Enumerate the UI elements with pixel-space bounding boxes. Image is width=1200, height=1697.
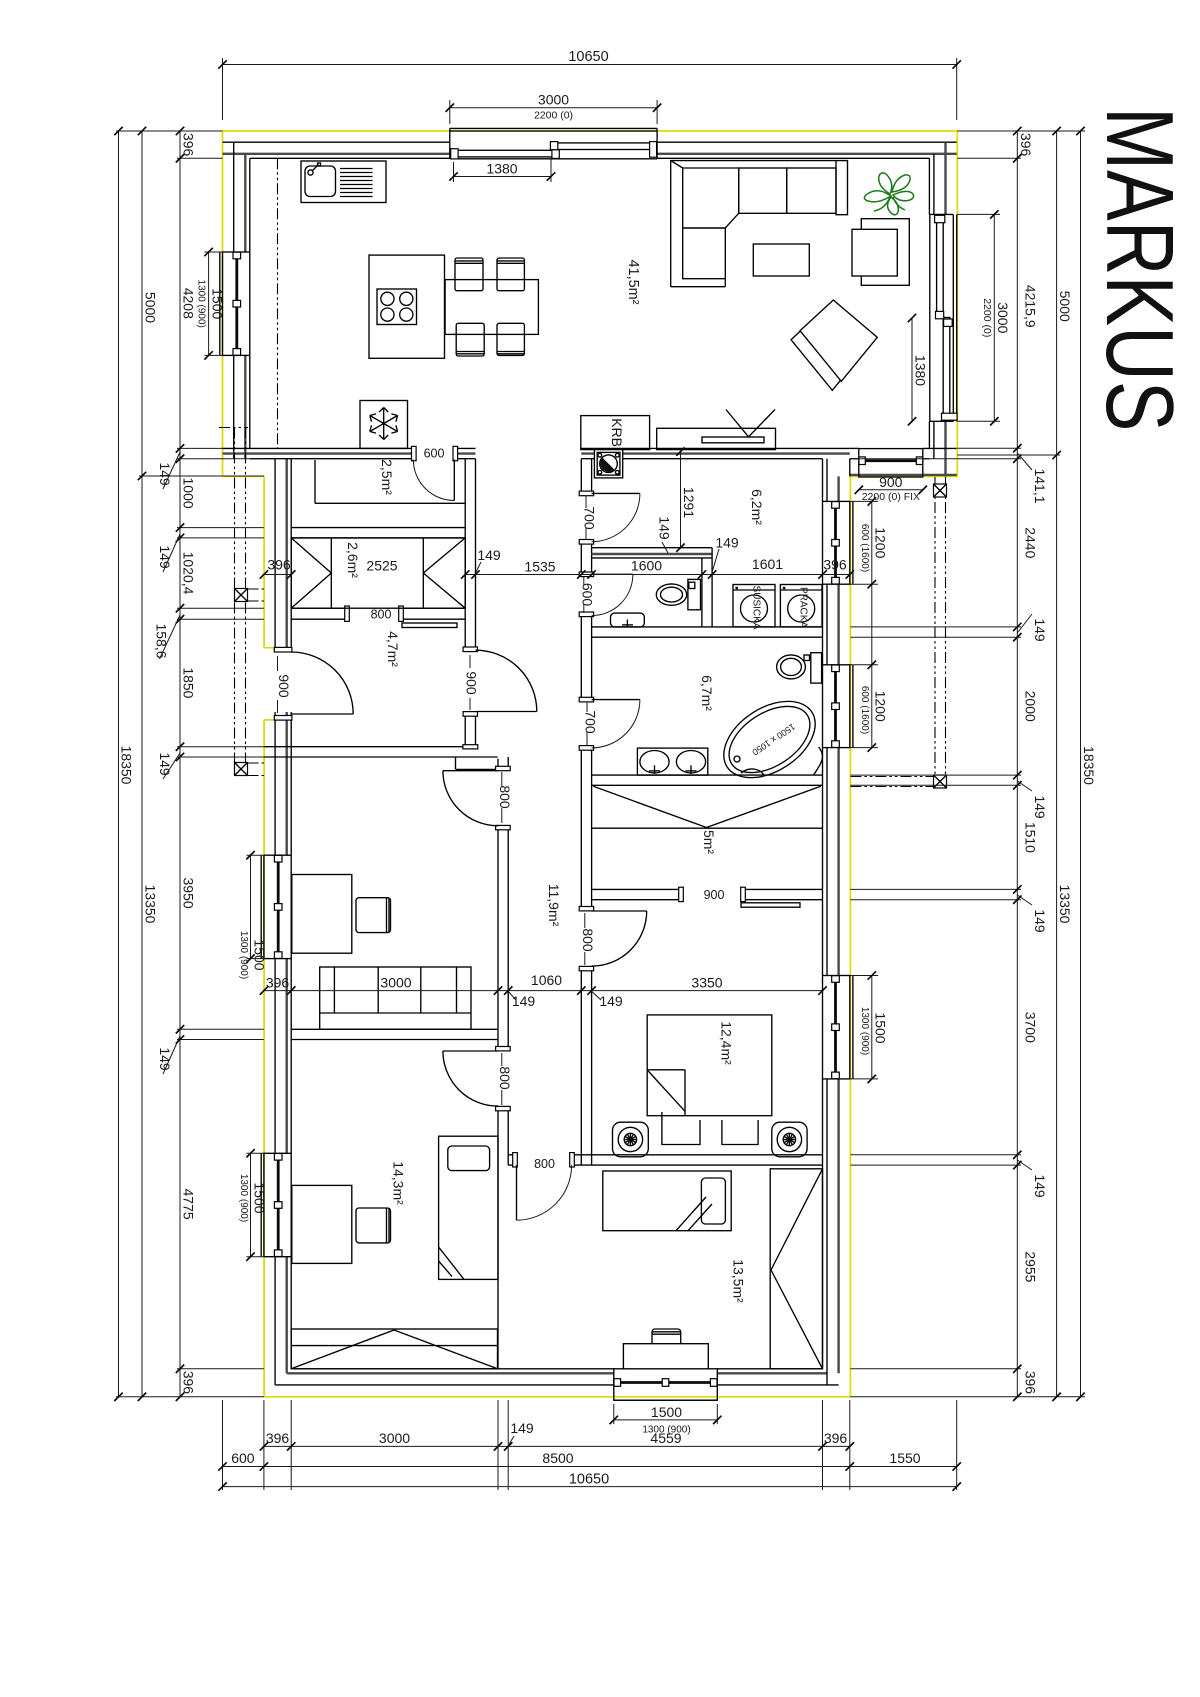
svg-text:900: 900 <box>704 888 725 902</box>
svg-text:158,6: 158,6 <box>154 623 170 658</box>
svg-text:2525: 2525 <box>366 558 397 574</box>
svg-text:149: 149 <box>157 462 173 486</box>
svg-text:900: 900 <box>464 671 480 695</box>
svg-text:MARKUS: MARKUS <box>1086 107 1193 431</box>
svg-text:2200 (0): 2200 (0) <box>981 298 993 337</box>
svg-text:5m²: 5m² <box>701 830 717 854</box>
svg-text:2,6m²: 2,6m² <box>345 542 361 578</box>
svg-text:396: 396 <box>1023 1371 1039 1395</box>
svg-text:396: 396 <box>267 557 291 573</box>
svg-text:1535: 1535 <box>524 559 555 575</box>
svg-text:396: 396 <box>181 1371 197 1395</box>
svg-text:2440: 2440 <box>1023 527 1039 558</box>
svg-text:396: 396 <box>1018 133 1034 157</box>
svg-text:1500: 1500 <box>651 1404 682 1420</box>
svg-text:149: 149 <box>157 545 173 569</box>
svg-text:4208: 4208 <box>181 288 197 319</box>
svg-text:1300 (900): 1300 (900) <box>238 1174 249 1222</box>
svg-text:41,5m²: 41,5m² <box>625 259 641 304</box>
svg-text:SUSICKA: SUSICKA <box>751 586 762 630</box>
svg-text:4775: 4775 <box>181 1189 197 1220</box>
svg-text:149: 149 <box>715 535 739 551</box>
svg-text:11,9m²: 11,9m² <box>546 884 562 927</box>
svg-text:149: 149 <box>599 993 623 1009</box>
svg-text:149: 149 <box>1032 909 1048 933</box>
svg-text:600 (1600): 600 (1600) <box>859 686 870 734</box>
svg-text:149: 149 <box>657 516 673 540</box>
svg-text:1380: 1380 <box>486 161 517 177</box>
svg-text:900: 900 <box>879 474 903 490</box>
svg-text:1500: 1500 <box>210 288 226 319</box>
svg-text:3000: 3000 <box>380 974 411 990</box>
svg-text:2955: 2955 <box>1023 1251 1039 1282</box>
svg-text:396: 396 <box>181 133 197 157</box>
svg-text:1200: 1200 <box>873 691 889 722</box>
svg-text:3000: 3000 <box>538 92 569 108</box>
svg-text:3700: 3700 <box>1023 1012 1039 1043</box>
svg-text:800: 800 <box>580 928 596 952</box>
svg-text:14,3m²: 14,3m² <box>391 1161 407 1205</box>
svg-text:2200 (0) FIX: 2200 (0) FIX <box>862 491 920 503</box>
svg-text:3350: 3350 <box>691 974 722 990</box>
svg-text:800: 800 <box>534 1157 555 1171</box>
svg-text:3000: 3000 <box>379 1430 410 1446</box>
svg-text:18350: 18350 <box>119 746 135 785</box>
svg-text:1500: 1500 <box>252 1182 268 1213</box>
svg-text:1300 (900): 1300 (900) <box>196 280 207 328</box>
svg-text:800: 800 <box>371 608 392 622</box>
svg-text:600: 600 <box>231 1450 255 1466</box>
svg-text:149: 149 <box>1032 1174 1048 1198</box>
svg-text:396: 396 <box>266 974 290 990</box>
svg-text:1000: 1000 <box>181 478 197 509</box>
svg-text:PRACKA: PRACKA <box>798 587 809 628</box>
svg-text:1510: 1510 <box>1023 822 1039 853</box>
svg-text:3000: 3000 <box>995 302 1011 333</box>
svg-text:1550: 1550 <box>889 1450 920 1466</box>
svg-text:700: 700 <box>582 506 598 530</box>
svg-text:149: 149 <box>157 1047 173 1071</box>
svg-text:149: 149 <box>477 547 501 563</box>
svg-text:3950: 3950 <box>181 878 197 909</box>
svg-text:18350: 18350 <box>1081 746 1097 785</box>
svg-text:149: 149 <box>1032 795 1048 819</box>
svg-text:900: 900 <box>276 674 292 698</box>
svg-text:2200 (0): 2200 (0) <box>534 110 573 122</box>
svg-text:396: 396 <box>824 1430 848 1446</box>
svg-text:800: 800 <box>497 1066 513 1090</box>
svg-text:8500: 8500 <box>542 1450 573 1466</box>
svg-text:5000: 5000 <box>143 292 159 323</box>
svg-text:2000: 2000 <box>1023 691 1039 722</box>
svg-text:13350: 13350 <box>1057 885 1073 924</box>
svg-text:2,5m²: 2,5m² <box>379 459 395 495</box>
svg-text:5000: 5000 <box>1057 291 1073 322</box>
svg-text:KRB: KRB <box>609 418 625 447</box>
svg-text:1500: 1500 <box>252 939 268 970</box>
svg-text:1601: 1601 <box>752 556 783 572</box>
svg-text:1020,4: 1020,4 <box>181 552 197 595</box>
svg-text:4215,9: 4215,9 <box>1023 285 1039 328</box>
svg-text:396: 396 <box>823 557 847 573</box>
svg-text:10650: 10650 <box>568 49 608 65</box>
svg-text:149: 149 <box>512 993 536 1009</box>
svg-text:1200: 1200 <box>873 527 889 558</box>
svg-text:12,4m²: 12,4m² <box>719 1021 735 1065</box>
svg-text:149: 149 <box>1032 618 1048 642</box>
svg-text:4,7m²: 4,7m² <box>385 631 401 667</box>
svg-text:1500: 1500 <box>873 1012 889 1043</box>
svg-text:600 (1600): 600 (1600) <box>859 524 870 572</box>
svg-text:1600: 1600 <box>631 558 662 574</box>
svg-text:1300 (900): 1300 (900) <box>859 1007 870 1055</box>
svg-text:13,5m²: 13,5m² <box>731 1259 747 1303</box>
svg-text:1300 (900): 1300 (900) <box>238 931 249 979</box>
svg-text:1291: 1291 <box>681 487 697 518</box>
svg-text:149: 149 <box>510 1420 534 1436</box>
svg-text:1850: 1850 <box>181 667 197 698</box>
svg-text:149: 149 <box>157 752 173 776</box>
svg-text:6,2m²: 6,2m² <box>749 489 765 525</box>
svg-text:10650: 10650 <box>569 1471 609 1487</box>
svg-text:1060: 1060 <box>531 972 562 988</box>
svg-text:396: 396 <box>266 1430 290 1446</box>
svg-text:600: 600 <box>580 583 596 607</box>
svg-text:700: 700 <box>583 710 599 734</box>
svg-text:600: 600 <box>424 446 445 460</box>
svg-text:13350: 13350 <box>143 885 159 924</box>
svg-text:4559: 4559 <box>650 1430 681 1446</box>
svg-text:6,7m²: 6,7m² <box>699 675 715 711</box>
svg-text:141,1: 141,1 <box>1032 468 1048 503</box>
svg-text:800: 800 <box>497 785 513 809</box>
svg-text:1380: 1380 <box>913 355 929 386</box>
